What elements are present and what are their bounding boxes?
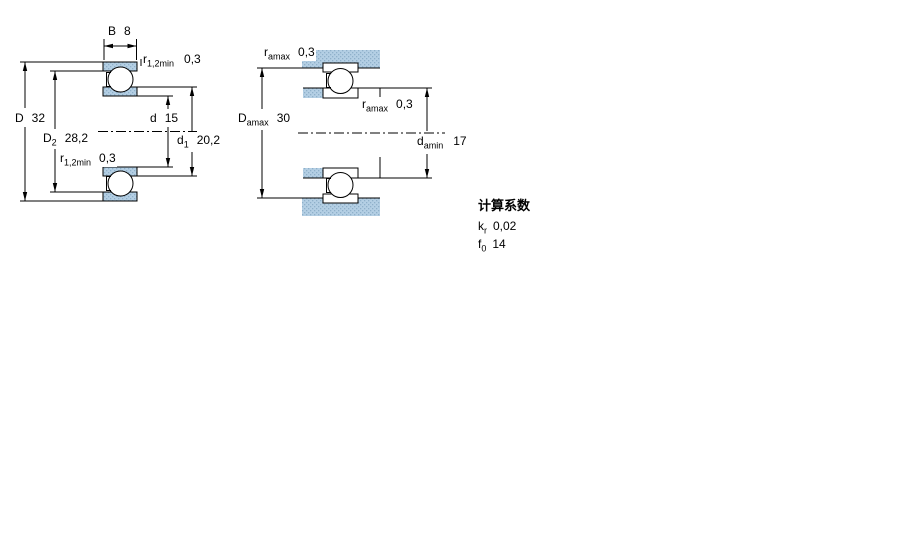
abutment-diagram: [257, 50, 445, 216]
ball: [108, 67, 133, 92]
dim-label-r-top: r1,2min0,3: [142, 52, 202, 68]
calculation-factor-f0: f014: [478, 237, 506, 253]
bearing-section-bottom: [103, 167, 137, 201]
dim-label-shoulder-diameter: d120,2: [176, 133, 221, 149]
dim-label-outside-diameter: D32: [14, 111, 46, 127]
bearing-drawing-page: B8 r1,2min0,3 D32 D228,2 d15 d120,2 r1,2…: [0, 0, 900, 560]
dim-label-r-bottom: r1,2min0,3: [59, 151, 117, 167]
bearing-section-bottom: [323, 168, 358, 203]
dim-label-recess-diameter: D228,2: [42, 131, 89, 147]
calculation-factor-kr: kr0,02: [478, 219, 516, 235]
ball: [328, 69, 353, 94]
dim-label-bore-diameter: d15: [149, 111, 179, 127]
dim-label-housing-shoulder: Damax30: [237, 111, 291, 127]
dim-label-width: B8: [107, 24, 132, 40]
ball: [328, 173, 353, 198]
dim-label-fillet-mid: ramax0,3: [361, 97, 414, 113]
bearing-section-top: [323, 63, 358, 98]
ball: [108, 171, 133, 196]
bearing-section-top: [103, 62, 137, 96]
calculation-factors-title: 计算系数: [478, 195, 530, 214]
technical-drawing-canvas: [0, 0, 470, 260]
dim-label-shaft-shoulder: damin17: [416, 134, 468, 150]
shaft-shoulder-bottom: [303, 168, 323, 178]
dim-label-fillet-top: ramax0,3: [263, 45, 316, 61]
shaft-shoulder-top: [303, 88, 323, 98]
